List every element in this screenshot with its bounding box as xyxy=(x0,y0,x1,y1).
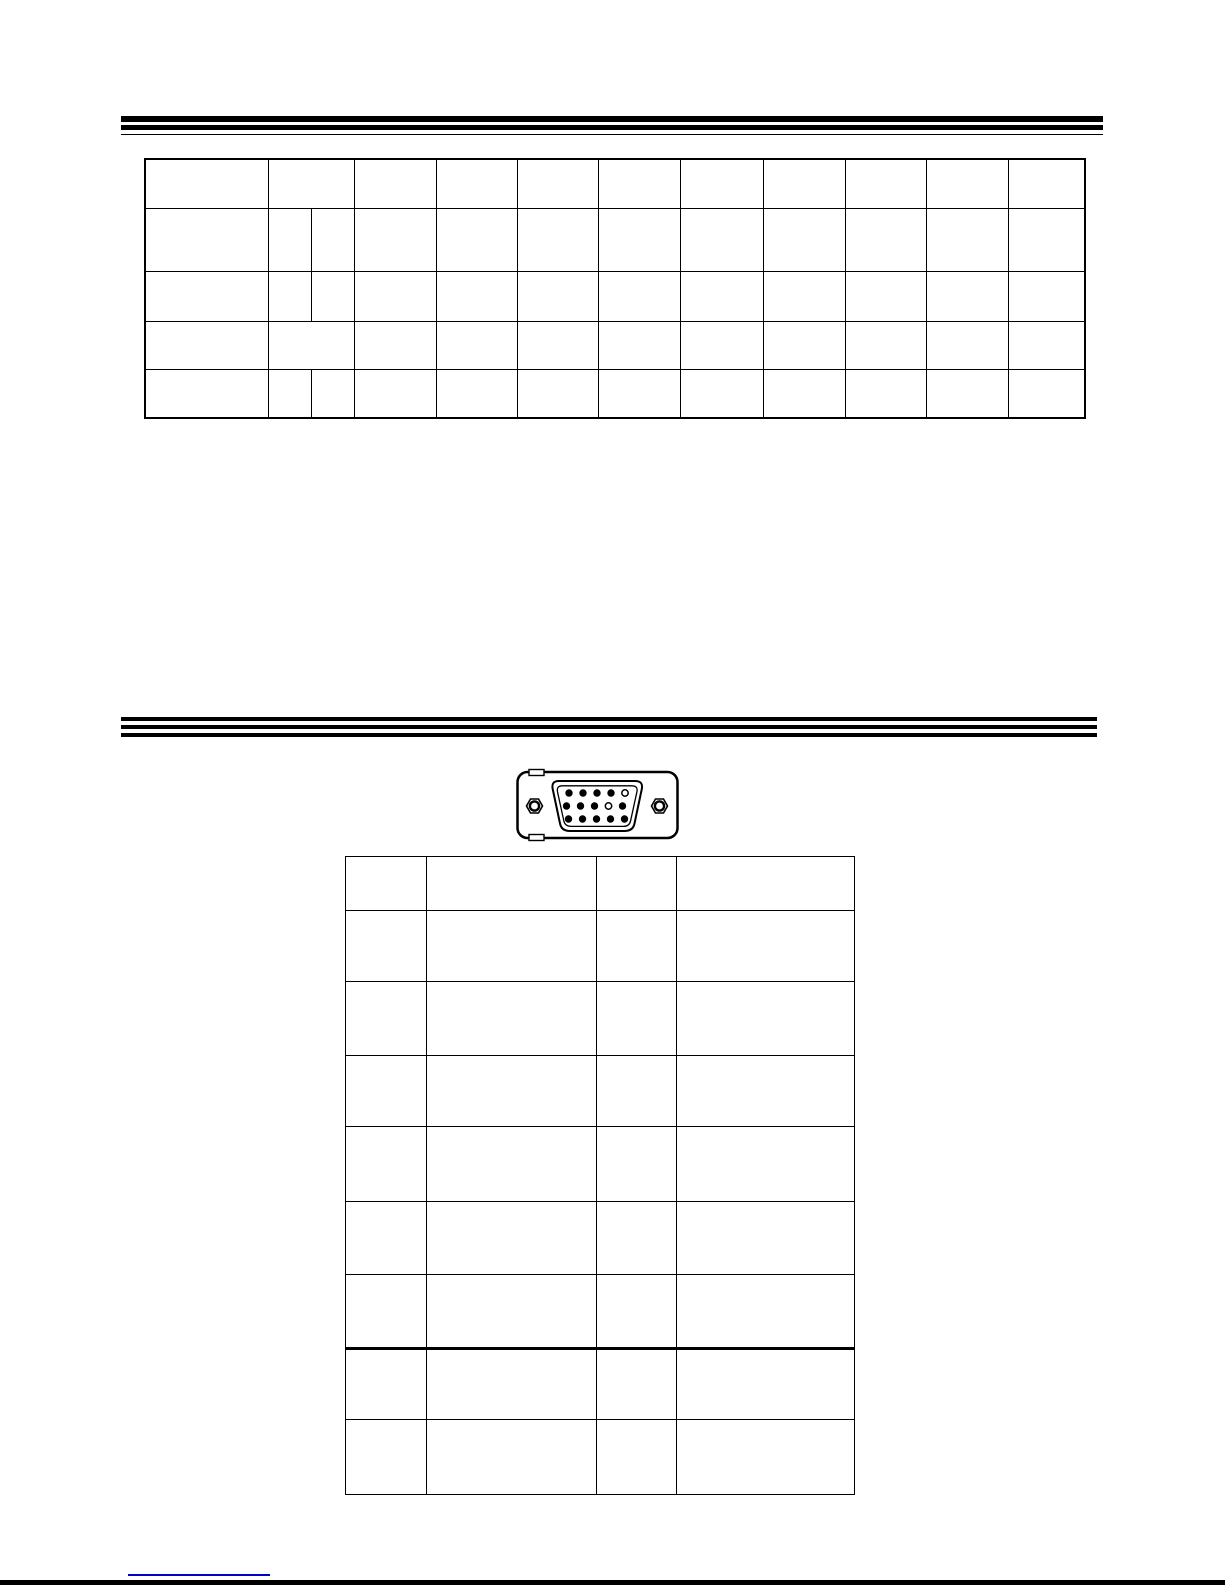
table-cell xyxy=(598,159,680,208)
table-cell xyxy=(354,271,436,321)
table-cell xyxy=(427,1420,597,1495)
mounting-screw-right xyxy=(652,799,668,813)
connector-pin-filled xyxy=(619,802,626,809)
table-cell xyxy=(145,208,268,271)
table-cell xyxy=(677,857,855,911)
table-cell xyxy=(268,271,311,321)
table-cell xyxy=(346,1420,427,1495)
connector-tab-top xyxy=(529,770,544,776)
connector-pin-filled xyxy=(621,815,628,822)
table-cell xyxy=(680,369,763,418)
table-cell xyxy=(346,1127,427,1202)
table-cell xyxy=(597,1202,677,1275)
table-cell xyxy=(145,369,268,418)
table-cell xyxy=(677,911,855,982)
table-cell xyxy=(427,1275,597,1349)
table-cell xyxy=(1008,159,1085,208)
connector-pin-open xyxy=(605,803,611,809)
footer-link[interactable] xyxy=(128,1562,270,1576)
table-cell xyxy=(268,321,354,369)
table-cell xyxy=(517,271,598,321)
table-cell xyxy=(427,1127,597,1202)
table-cell xyxy=(763,369,845,418)
table-cell xyxy=(763,208,845,271)
table-cell xyxy=(311,208,354,271)
table-cell xyxy=(926,369,1008,418)
table-cell xyxy=(680,159,763,208)
connector-pin-filled xyxy=(593,789,600,796)
table-cell xyxy=(145,271,268,321)
page-bottom-rule xyxy=(0,1580,1225,1585)
table-cell xyxy=(354,208,436,271)
connector-pin-filled xyxy=(577,802,584,809)
table-cell xyxy=(517,369,598,418)
table-cell xyxy=(677,1202,855,1275)
connector-pin-filled xyxy=(579,789,586,796)
table-cell xyxy=(597,982,677,1056)
table-cell xyxy=(346,982,427,1056)
table-cell xyxy=(677,1056,855,1127)
table-cell xyxy=(427,857,597,911)
table-cell xyxy=(598,208,680,271)
table-cell xyxy=(427,1056,597,1127)
table-cell xyxy=(845,271,926,321)
table-cell xyxy=(597,911,677,982)
mounting-screw-left xyxy=(527,799,543,813)
connector-tab-bottom xyxy=(529,835,544,841)
table-cell xyxy=(427,911,597,982)
table-cell xyxy=(346,1275,427,1349)
table-cell xyxy=(354,159,436,208)
table-cell xyxy=(1008,208,1085,271)
table-cell xyxy=(268,208,311,271)
table-cell xyxy=(145,321,268,369)
section-rule-top-line2 xyxy=(121,125,1103,130)
table-cell xyxy=(598,369,680,418)
connector-pin-filled xyxy=(565,789,572,796)
table-cell xyxy=(436,369,517,418)
table-cell xyxy=(436,208,517,271)
table-cell xyxy=(354,369,436,418)
top-table xyxy=(144,158,1086,419)
connector-pin-filled xyxy=(607,815,614,822)
table-cell xyxy=(268,159,354,208)
table-cell xyxy=(680,271,763,321)
table-cell xyxy=(845,321,926,369)
table-cell xyxy=(597,1056,677,1127)
vga-connector-diagram xyxy=(500,750,700,855)
table-cell xyxy=(926,208,1008,271)
connector-pin-open xyxy=(622,790,628,796)
table-cell xyxy=(677,982,855,1056)
connector-pin-filled xyxy=(591,802,598,809)
section-rule-middle-line3 xyxy=(121,733,1097,737)
section-rule-top-line1 xyxy=(121,116,1103,122)
table-cell xyxy=(268,369,311,418)
connector-pin-filled xyxy=(579,815,586,822)
table-cell xyxy=(346,911,427,982)
table-cell xyxy=(926,271,1008,321)
table-cell xyxy=(763,159,845,208)
table-cell xyxy=(598,321,680,369)
table-cell xyxy=(354,321,436,369)
table-cell xyxy=(926,321,1008,369)
table-cell xyxy=(845,208,926,271)
table-cell xyxy=(145,159,268,208)
table-cell xyxy=(427,982,597,1056)
table-cell xyxy=(677,1349,855,1420)
connector-pin-filled xyxy=(593,815,600,822)
table-cell xyxy=(427,1349,597,1420)
table-cell xyxy=(346,1202,427,1275)
table-cell xyxy=(346,857,427,911)
table-cell xyxy=(1008,321,1085,369)
table-cell xyxy=(517,321,598,369)
table-cell xyxy=(597,1349,677,1420)
connector-pin-filled xyxy=(607,789,614,796)
table-cell xyxy=(517,208,598,271)
table-cell xyxy=(436,159,517,208)
table-cell xyxy=(845,369,926,418)
bottom-table xyxy=(345,856,855,1495)
connector-pin-filled xyxy=(565,815,572,822)
table-cell xyxy=(346,1349,427,1420)
table-cell xyxy=(680,321,763,369)
table-cell xyxy=(311,369,354,418)
table-cell xyxy=(763,271,845,321)
table-cell xyxy=(926,159,1008,208)
table-cell xyxy=(436,321,517,369)
section-rule-top-line3 xyxy=(121,134,1103,135)
table-cell xyxy=(677,1420,855,1495)
table-cell xyxy=(517,159,598,208)
table-cell xyxy=(597,1127,677,1202)
table-cell xyxy=(346,1056,427,1127)
table-cell xyxy=(597,1275,677,1349)
table-cell xyxy=(427,1202,597,1275)
table-cell xyxy=(1008,369,1085,418)
document-page xyxy=(0,0,1225,1585)
table-cell xyxy=(1008,271,1085,321)
table-cell xyxy=(677,1127,855,1202)
section-rule-middle-line1 xyxy=(121,717,1097,721)
table-cell xyxy=(436,271,517,321)
connector-pin-filled xyxy=(563,802,570,809)
table-cell xyxy=(677,1275,855,1349)
table-cell xyxy=(597,1420,677,1495)
table-cell xyxy=(597,857,677,911)
table-cell xyxy=(598,271,680,321)
table-cell xyxy=(311,271,354,321)
section-rule-middle-line2 xyxy=(121,725,1097,729)
table-cell xyxy=(845,159,926,208)
table-cell xyxy=(680,208,763,271)
table-cell xyxy=(763,321,845,369)
